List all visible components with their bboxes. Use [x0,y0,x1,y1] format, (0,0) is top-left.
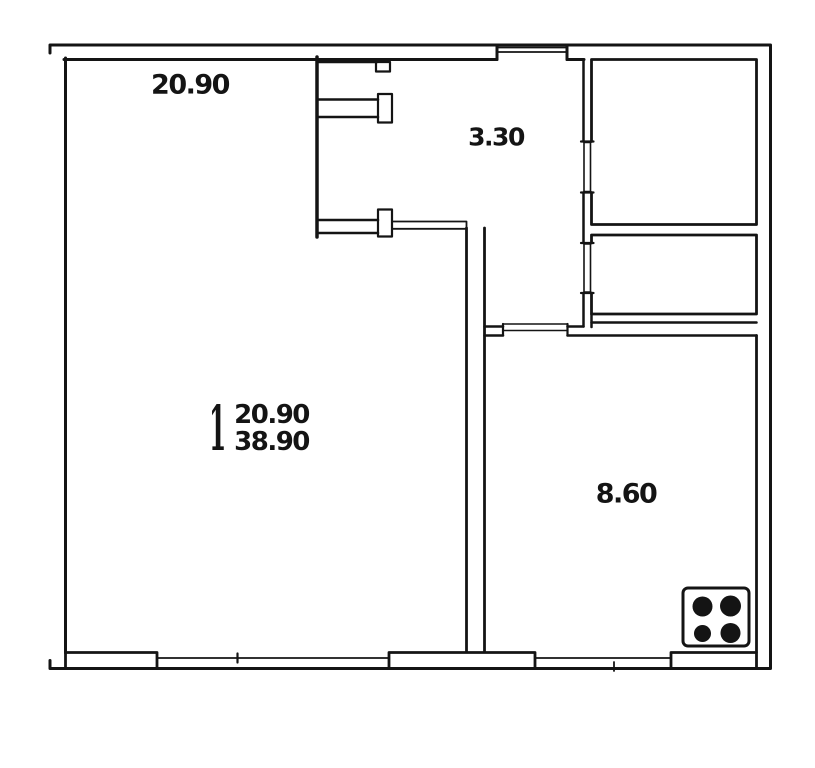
living-room-door [392,222,467,229]
floor-plan-drawing [0,0,815,768]
rooms-count-label: 1 [209,402,226,456]
kitchen-door [503,324,568,331]
total-area-label: 38.90 [234,429,309,456]
entry-door [497,45,567,60]
living-area-label: 20.90 [234,402,309,429]
apartment-summary: 1 20.90 38.90 [209,402,309,456]
living-room-area-label: 20.90 [151,70,229,101]
bathroom-door [584,143,591,192]
kitchen-area-label: 8.60 [596,479,657,510]
stove-burners-icon [683,588,749,646]
exterior-walls [50,45,771,669]
closet-walls [317,57,392,237]
floor-plan-canvas: 20.90 3.30 8.60 1 20.90 38.90 [0,0,815,768]
toilet-door [584,244,591,292]
hallway-area-label: 3.30 [468,123,524,152]
